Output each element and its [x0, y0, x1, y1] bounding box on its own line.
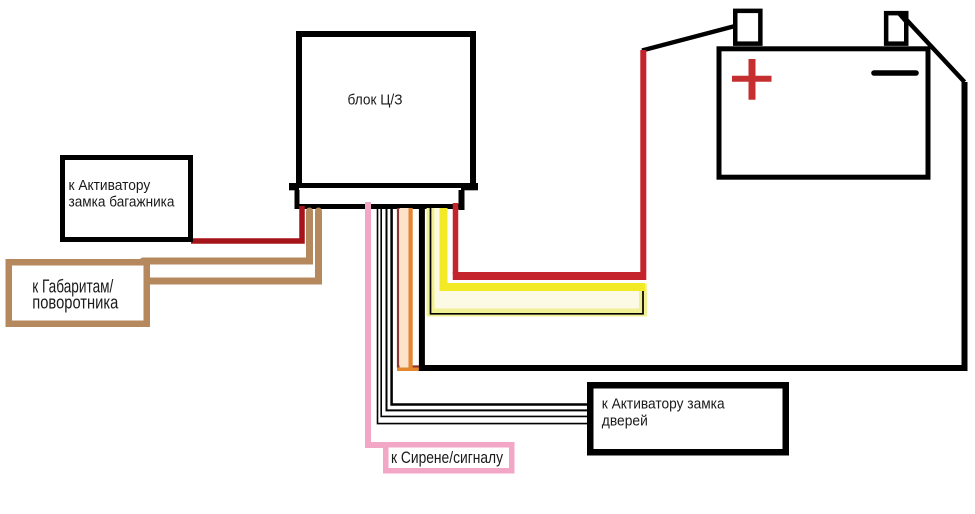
svg-text:поворотника: поворотника: [32, 293, 119, 313]
svg-text:замка багажника: замка багажника: [69, 194, 176, 211]
svg-text:дверей: дверей: [602, 414, 648, 430]
svg-text:блок Ц/З: блок Ц/З: [348, 92, 403, 109]
svg-text:к Активатору: к Активатору: [69, 177, 151, 194]
svg-text:к Сирене/сигналу: к Сирене/сигналу: [391, 448, 503, 467]
svg-text:к Активатору замка: к Активатору замка: [602, 397, 726, 413]
